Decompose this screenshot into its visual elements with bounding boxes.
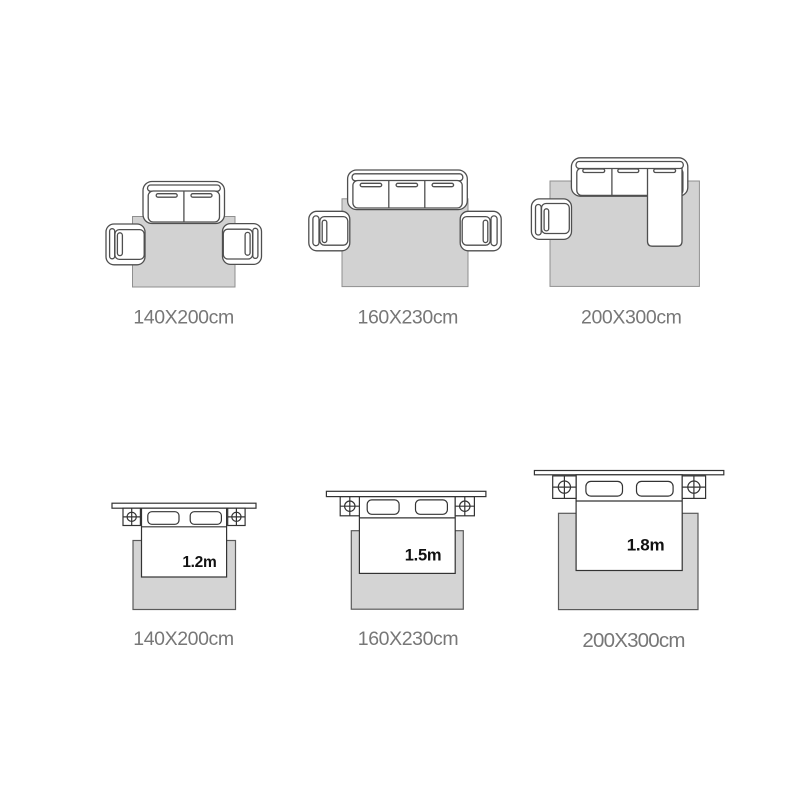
svg-text:1.5m: 1.5m (405, 547, 441, 565)
svg-text:1.2m: 1.2m (182, 554, 216, 571)
svg-text:1.8m: 1.8m (627, 536, 665, 555)
svg-text:160X230cm: 160X230cm (358, 307, 458, 329)
svg-text:140X200cm: 140X200cm (133, 307, 233, 329)
svg-text:160X230cm: 160X230cm (358, 628, 458, 650)
svg-text:140X200cm: 140X200cm (133, 628, 233, 650)
svg-text:200X300cm: 200X300cm (581, 307, 681, 329)
svg-text:200X300cm: 200X300cm (582, 629, 684, 652)
